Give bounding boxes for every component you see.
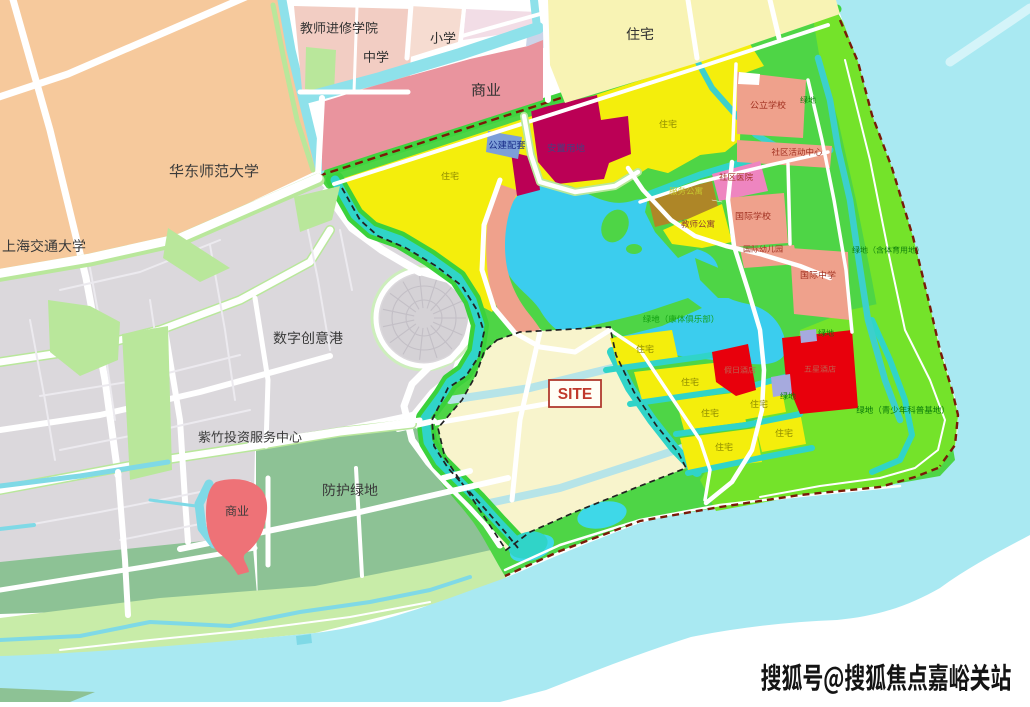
svg-text:SITE: SITE bbox=[558, 386, 592, 403]
